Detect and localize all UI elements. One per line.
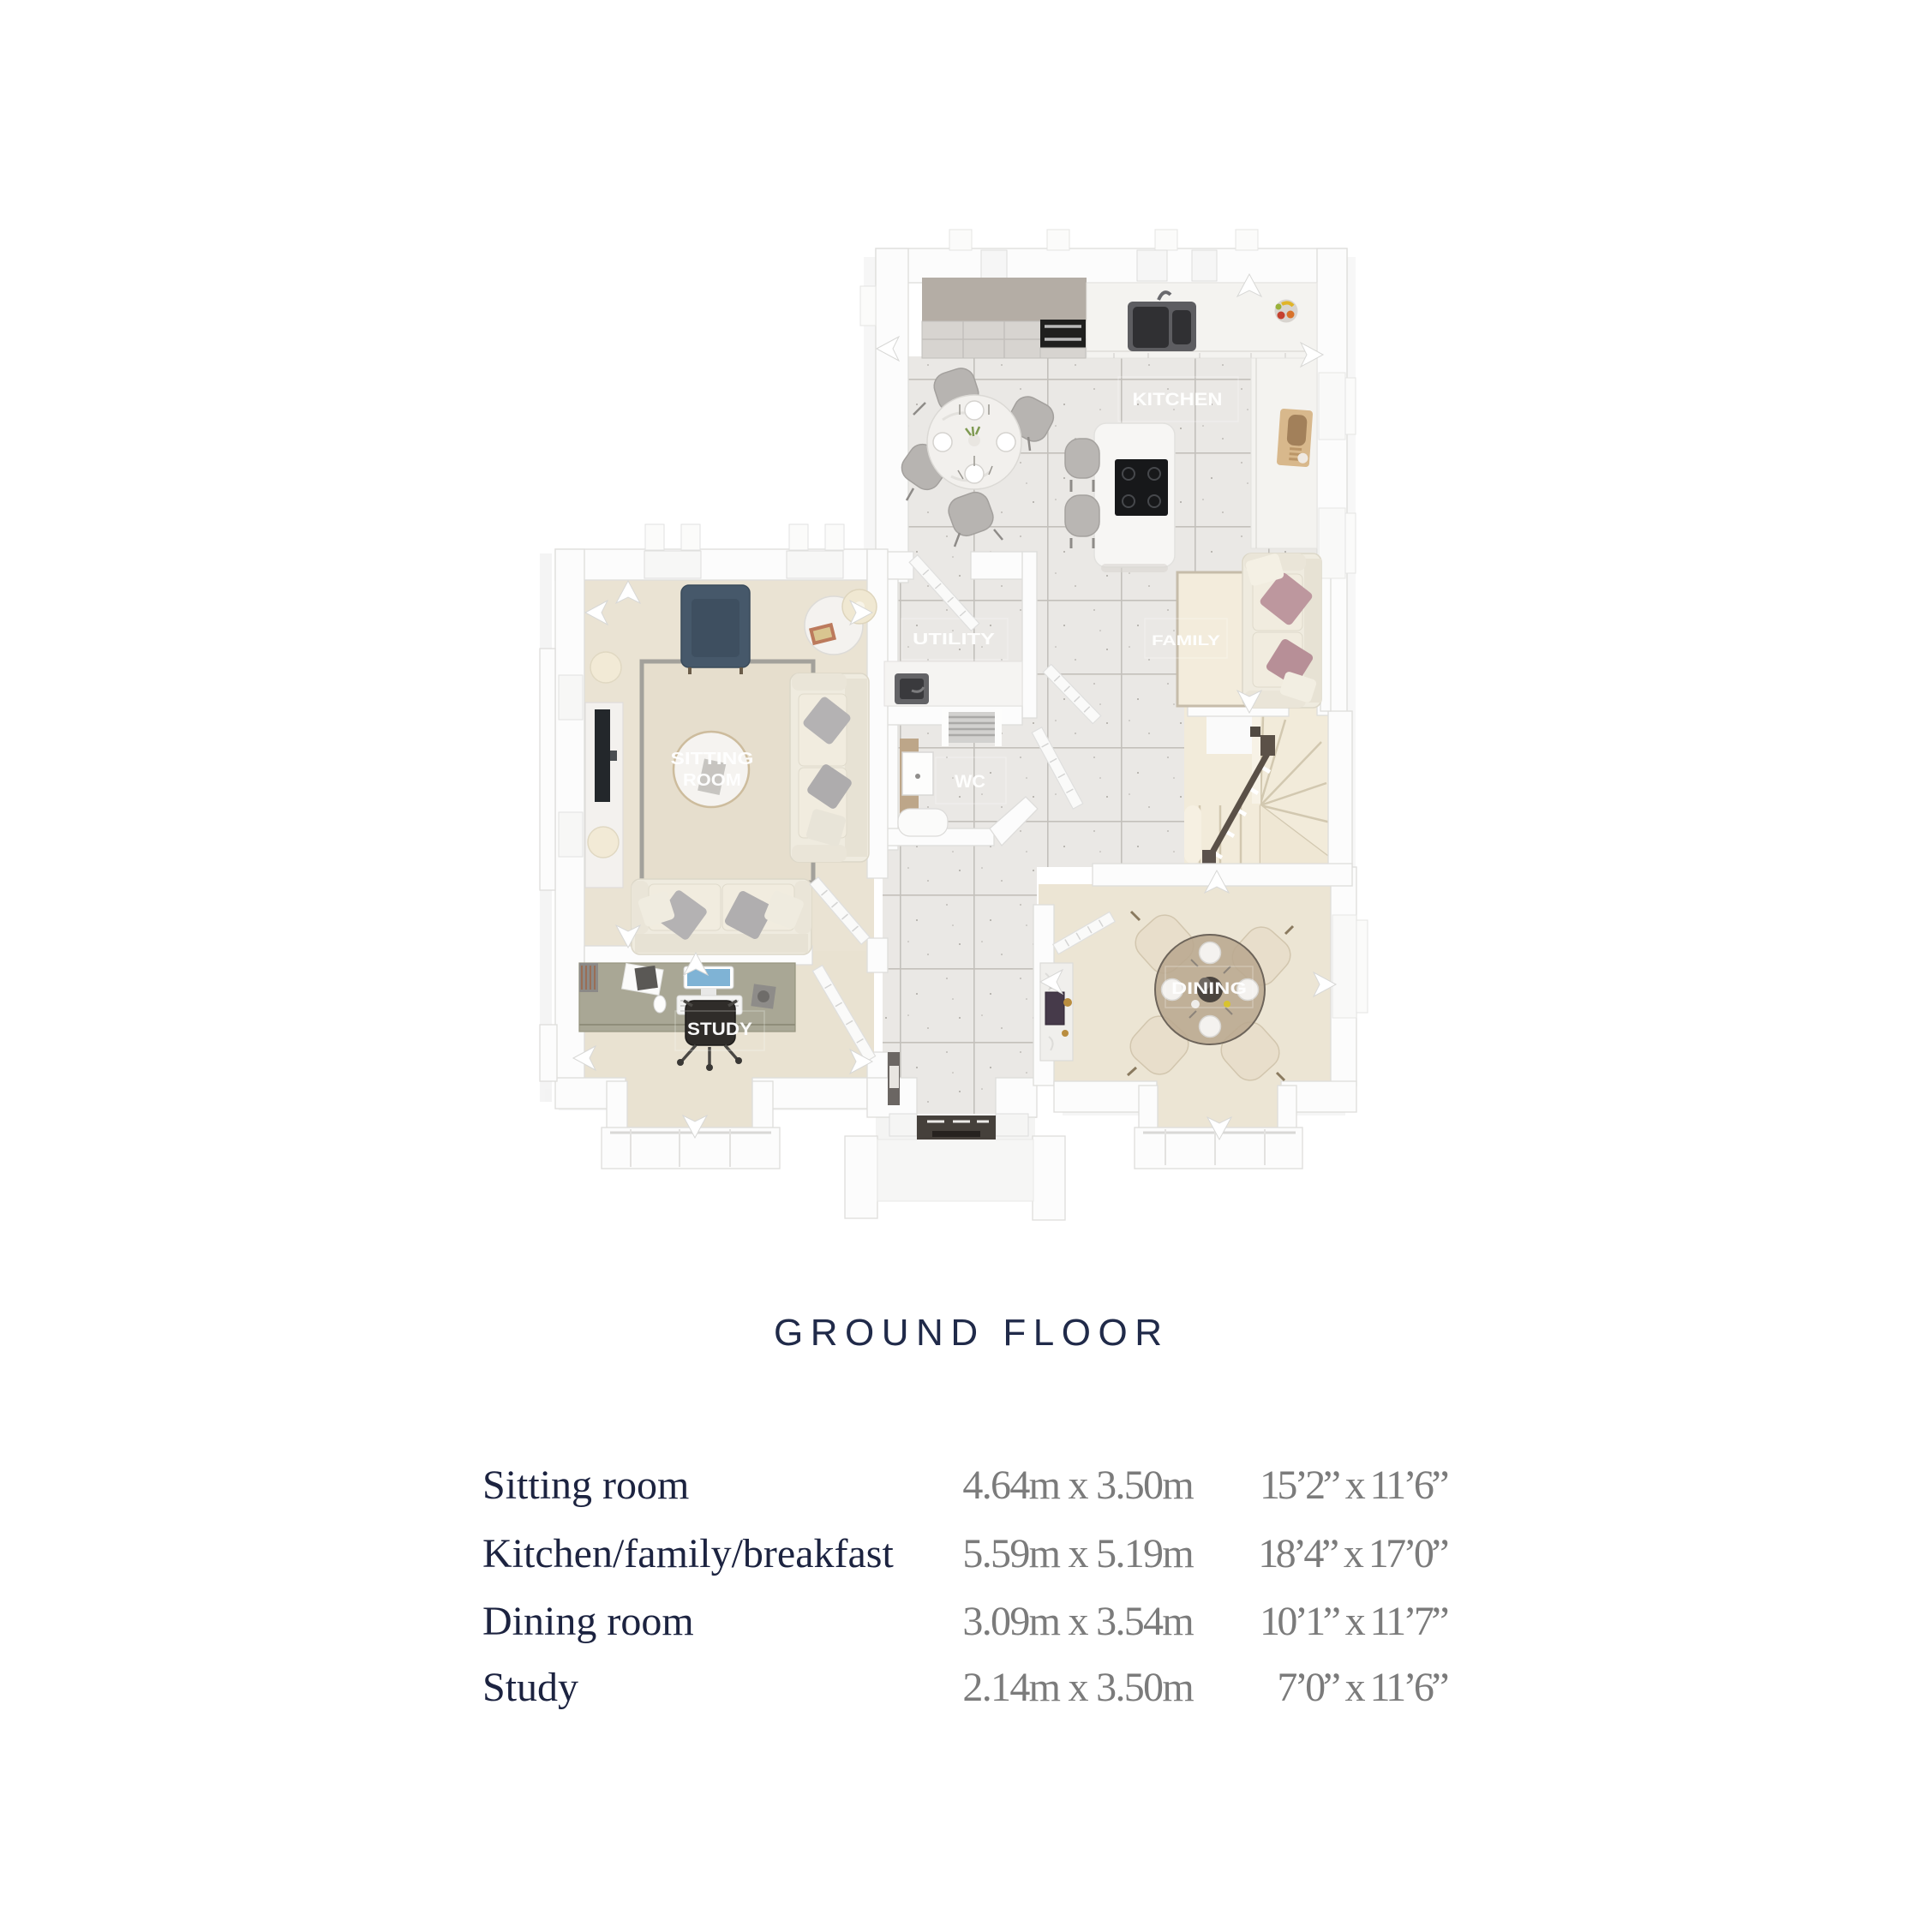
svg-text:Kitchen/family/breakfast: Kitchen/family/breakfast	[482, 1531, 894, 1576]
svg-text:Sitting room: Sitting room	[482, 1462, 689, 1508]
svg-text:STUDY: STUDY	[687, 1020, 752, 1039]
svg-text:4.64m x 3.50m: 4.64m x 3.50m	[962, 1462, 1194, 1508]
svg-text:Study: Study	[482, 1665, 578, 1710]
svg-text:10’1” x 11’7”: 10’1” x 11’7”	[1260, 1599, 1448, 1644]
svg-text:2.14m x 3.50m: 2.14m x 3.50m	[962, 1665, 1194, 1710]
svg-text:FAMILY: FAMILY	[1152, 632, 1221, 649]
svg-text:UTILITY: UTILITY	[913, 631, 995, 648]
svg-text:18’4” x 17’0”: 18’4” x 17’0”	[1258, 1531, 1448, 1576]
svg-text:Dining room: Dining room	[482, 1599, 694, 1644]
svg-text:GROUND FLOOR: GROUND FLOOR	[774, 1312, 1173, 1354]
svg-text:ROOM: ROOM	[683, 771, 741, 790]
svg-text:3.09m x 3.54m: 3.09m x 3.54m	[962, 1599, 1194, 1644]
svg-text:5.59m x 5.19m: 5.59m x 5.19m	[962, 1531, 1194, 1576]
svg-text:15’2” x 11’6”: 15’2” x 11’6”	[1260, 1462, 1448, 1508]
svg-text:7’0” x 11’6”: 7’0” x 11’6”	[1277, 1665, 1448, 1710]
svg-text:SITTING: SITTING	[671, 750, 754, 769]
svg-text:KITCHEN: KITCHEN	[1133, 390, 1223, 410]
svg-text:DINING: DINING	[1171, 980, 1247, 998]
svg-text:WC: WC	[955, 772, 985, 792]
